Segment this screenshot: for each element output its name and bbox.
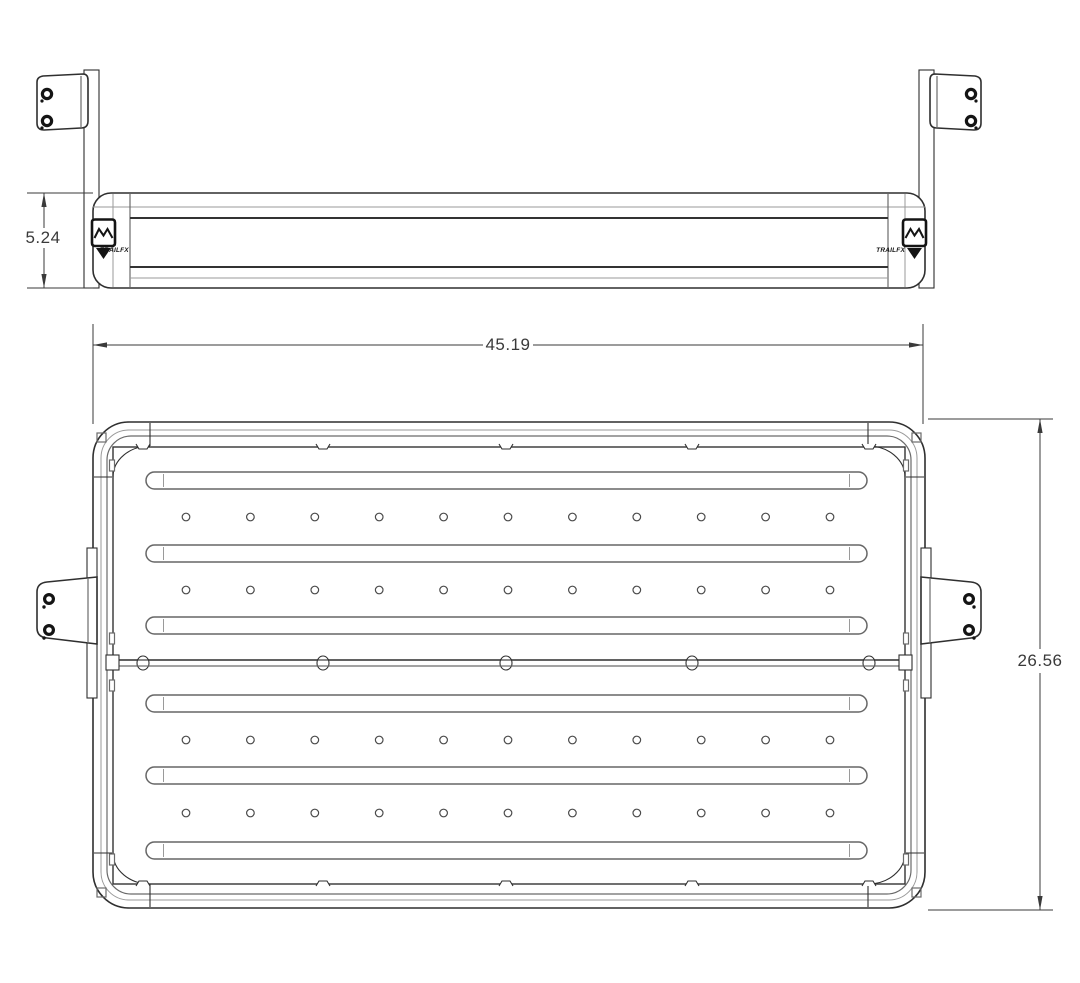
drawing-canvas: TRAILFX TRAILFX 5.24: [0, 0, 1080, 983]
deck-hole: [440, 809, 448, 817]
deck-hole: [311, 586, 319, 594]
deck-hole: [826, 513, 834, 521]
deck-hole: [375, 513, 383, 521]
deck-hole: [762, 513, 770, 521]
rail-tab: [904, 680, 909, 691]
mounting-bracket-side-left: [37, 70, 99, 288]
deck-hole: [182, 586, 190, 594]
seam-end-block: [106, 655, 119, 670]
seam-clip: [863, 656, 875, 670]
deck-hole: [569, 736, 577, 744]
rail-clip: [685, 881, 699, 886]
deck-hole: [375, 809, 383, 817]
deck-slot: [146, 545, 867, 562]
rail-clip: [685, 444, 699, 449]
arrowhead-icon: [93, 342, 107, 347]
arrowhead-icon: [41, 274, 46, 288]
deck-hole: [569, 513, 577, 521]
rail-clip: [862, 444, 876, 449]
rail-tab: [110, 854, 115, 865]
bolt-icon: [42, 116, 51, 125]
deck-hole: [826, 586, 834, 594]
bolt-tail: [42, 636, 45, 639]
deck-hole: [375, 586, 383, 594]
arrowhead-icon: [1037, 419, 1042, 433]
arrowhead-icon: [41, 193, 46, 207]
rail-tab: [904, 460, 909, 471]
rail-tab: [110, 633, 115, 644]
deck-hole: [182, 513, 190, 521]
deck-hole: [569, 809, 577, 817]
deck-hole: [633, 513, 641, 521]
deck-hole: [633, 809, 641, 817]
deck-hole: [311, 513, 319, 521]
rail-tab: [110, 680, 115, 691]
dim-side-height-text: 5.24: [25, 228, 60, 247]
rail-clip: [316, 881, 330, 886]
deck-hole: [697, 586, 705, 594]
deck-hole: [504, 586, 512, 594]
rail-clip: [316, 444, 330, 449]
crossbar: [93, 193, 925, 288]
deck-slot: [146, 695, 867, 712]
dimension-plan-depth: 26.56: [928, 419, 1063, 910]
seam-end-block: [899, 655, 912, 670]
dimension-side-height: 5.24: [25, 193, 93, 288]
deck-hole: [247, 586, 255, 594]
deck-hole: [504, 809, 512, 817]
rail-tab: [110, 460, 115, 471]
rail-tab: [904, 854, 909, 865]
deck-hole: [440, 586, 448, 594]
deck-hole: [440, 736, 448, 744]
deck-hole: [247, 809, 255, 817]
rail-clip: [136, 881, 150, 886]
arrowhead-icon: [1037, 896, 1042, 910]
deck-hole: [697, 736, 705, 744]
seam-clip: [686, 656, 698, 670]
side-view: TRAILFX TRAILFX 5.24: [25, 70, 981, 288]
deck-hole: [826, 809, 834, 817]
deck-hole: [697, 809, 705, 817]
deck-hole: [182, 736, 190, 744]
arrowhead-icon: [909, 342, 923, 347]
deck-hole: [182, 809, 190, 817]
dimension-plan-width: 45.19: [93, 324, 923, 424]
deck-hole: [633, 586, 641, 594]
deck-hole: [375, 736, 383, 744]
deck-slot: [146, 842, 867, 859]
bolt-tail: [40, 126, 43, 129]
deck-hole: [762, 736, 770, 744]
rail-clip: [499, 881, 513, 886]
bolt-icon: [42, 89, 51, 98]
deck-hole: [826, 736, 834, 744]
mounting-bracket-plan-right: [921, 548, 981, 698]
deck-hole: [697, 513, 705, 521]
seam-clip: [317, 656, 329, 670]
mounting-bracket-side-right: [919, 70, 981, 288]
deck-hole: [311, 736, 319, 744]
deck-slot: [146, 767, 867, 784]
deck-hole: [247, 736, 255, 744]
rail-clip: [136, 444, 150, 449]
rail-tab: [904, 633, 909, 644]
deck-hole: [504, 736, 512, 744]
deck-hole: [762, 809, 770, 817]
seam-clip: [500, 656, 512, 670]
plan-view: 45.19 26.56: [37, 324, 1063, 910]
brand-logo-text: TRAILFX: [876, 247, 905, 254]
dim-plan-depth-text: 26.56: [1017, 651, 1062, 670]
deck-hole: [311, 809, 319, 817]
bolt-icon: [45, 626, 54, 635]
rail-clip: [862, 881, 876, 886]
deck-hole: [504, 513, 512, 521]
deck-hole: [247, 513, 255, 521]
technical-drawing-svg: TRAILFX TRAILFX 5.24: [0, 0, 1080, 983]
seam-clip: [137, 656, 149, 670]
deck-slot: [146, 472, 867, 489]
brand-logo-text: TRAILFX: [100, 247, 129, 254]
deck-hole: [440, 513, 448, 521]
rail-clip: [499, 444, 513, 449]
mounting-bracket-plan-left: [37, 548, 97, 698]
bolt-icon: [45, 595, 54, 604]
bolt-tail: [40, 99, 43, 102]
deck-hole: [762, 586, 770, 594]
dim-plan-width-text: 45.19: [485, 335, 530, 354]
deck-hole: [633, 736, 641, 744]
bolt-tail: [42, 605, 45, 608]
deck-slot: [146, 617, 867, 634]
deck-hole: [569, 586, 577, 594]
